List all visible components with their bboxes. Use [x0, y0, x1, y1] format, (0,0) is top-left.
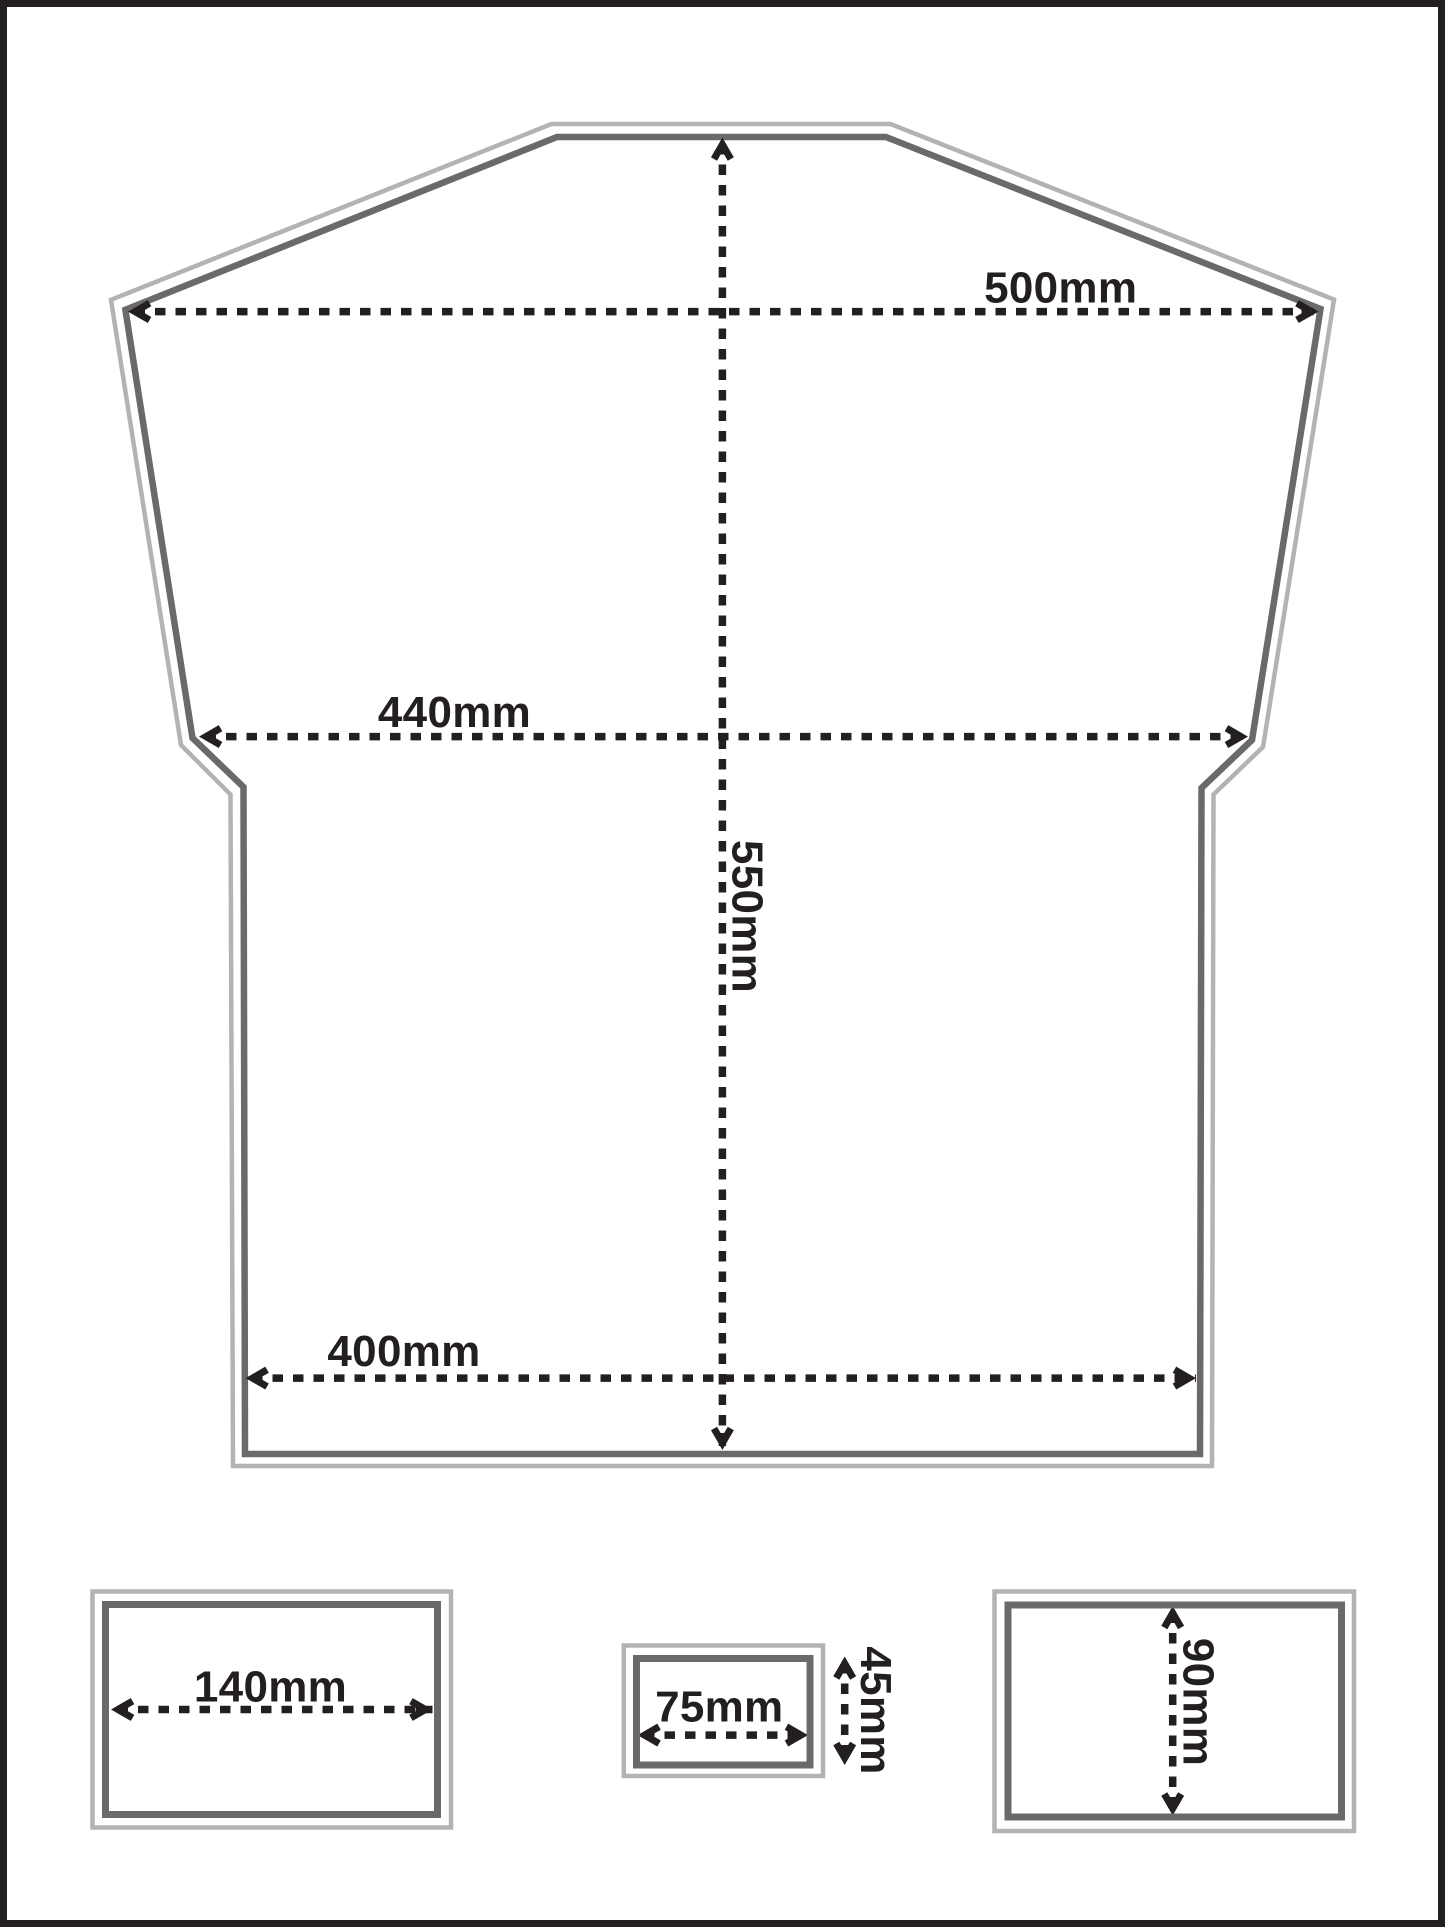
- svg-text:550mm: 550mm: [723, 840, 772, 993]
- svg-text:500mm: 500mm: [984, 263, 1137, 312]
- svg-text:140mm: 140mm: [194, 1663, 347, 1712]
- svg-text:440mm: 440mm: [378, 688, 531, 737]
- svg-text:75mm: 75mm: [655, 1683, 783, 1732]
- svg-text:45mm: 45mm: [851, 1646, 900, 1774]
- svg-text:400mm: 400mm: [327, 1327, 480, 1376]
- svg-text:90mm: 90mm: [1174, 1638, 1223, 1766]
